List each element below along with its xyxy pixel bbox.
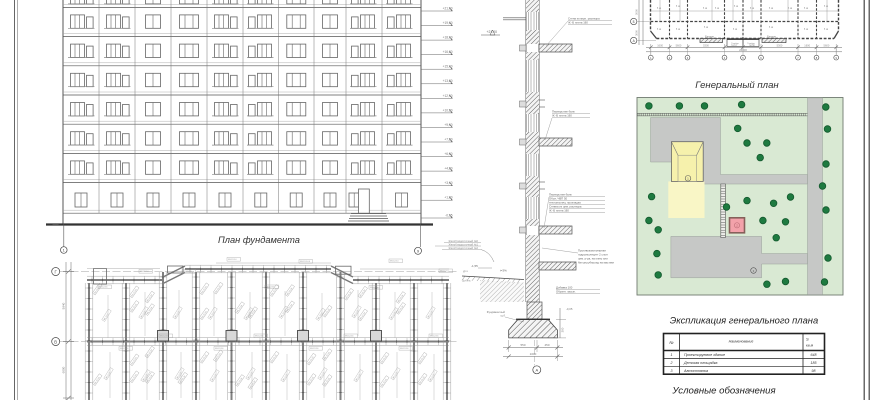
svg-text:Б: Б	[633, 20, 635, 24]
svg-text:В: В	[54, 339, 57, 344]
svg-text:5000: 5000	[635, 9, 639, 15]
svg-text:Желоб водосточный №1: Желоб водосточный №1	[449, 242, 479, 246]
svg-text:3: 3	[671, 369, 673, 373]
svg-text:5 кв: 5 кв	[715, 7, 720, 10]
svg-text:+21,00: +21,00	[443, 7, 453, 11]
svg-text:ФБС24.6: ФБС24.6	[255, 335, 264, 338]
svg-text:6000: 6000	[62, 366, 66, 373]
svg-text:кв.м: кв.м	[806, 344, 814, 348]
svg-text:5 кв: 5 кв	[750, 7, 755, 10]
svg-text:5 кв: 5 кв	[676, 28, 681, 31]
svg-text:Условные обозначения: Условные обозначения	[671, 386, 775, 397]
svg-text:550: 550	[520, 343, 525, 347]
svg-text:5 кв: 5 кв	[733, 28, 738, 31]
svg-text:1600: 1600	[804, 43, 810, 47]
svg-text:Обратн. засып.: Обратн. засып.	[556, 290, 576, 294]
svg-text:ФБС24.6: ФБС24.6	[266, 286, 275, 289]
svg-text:Щебень: Щебень	[462, 280, 472, 283]
svg-text:ур.з: ур.з	[463, 270, 468, 273]
svg-text:5600: 5600	[749, 43, 755, 47]
svg-text:ФБС24.6: ФБС24.6	[400, 347, 409, 350]
svg-text:Балкон: Балкон	[767, 34, 776, 38]
svg-text:+7,80: +7,80	[444, 138, 452, 142]
svg-text:Проектируемое здание: Проектируемое здание	[684, 353, 725, 357]
svg-text:ФБС12.4: ФБС12.4	[440, 270, 449, 273]
svg-text:-1,55: -1,55	[471, 264, 478, 268]
svg-text:5 кв: 5 кв	[657, 7, 662, 10]
svg-text:Наименование: Наименование	[729, 340, 754, 344]
svg-text:+1,80: +1,80	[444, 196, 452, 200]
svg-text:ФБС24.6: ФБС24.6	[370, 286, 379, 289]
svg-text:1: 1	[671, 353, 673, 357]
svg-text:648: 648	[811, 353, 817, 357]
svg-text:+21,00: +21,00	[487, 30, 498, 34]
svg-text:+12,00: +12,00	[443, 94, 453, 98]
svg-text:+3,00: +3,00	[444, 181, 452, 185]
svg-text:Генеральный план: Генеральный план	[695, 80, 779, 91]
svg-text:26000: 26000	[739, 48, 747, 52]
svg-text:+19,80: +19,80	[443, 21, 453, 25]
svg-text:ФБС24.6: ФБС24.6	[310, 347, 319, 350]
svg-text:5 кв: 5 кв	[804, 28, 809, 31]
svg-text:5 кв: 5 кв	[734, 5, 739, 8]
svg-text:Фундаментный: Фундаментный	[487, 310, 506, 314]
svg-text:Ж -Б плита 160: Ж -Б плита 160	[549, 209, 569, 213]
svg-text:ФБС24.6: ФБС24.6	[160, 335, 169, 338]
svg-text:ФБС24.4: ФБС24.4	[228, 258, 237, 261]
svg-text:Ж -Б плита 160: Ж -Б плита 160	[568, 21, 588, 25]
svg-text:План фундамента: План фундамента	[218, 235, 300, 245]
svg-text:300: 300	[561, 327, 565, 332]
svg-text:S: S	[806, 337, 809, 342]
svg-text:5 кв: 5 кв	[657, 28, 662, 31]
svg-text:Экспликация генерального плана: Экспликация генерального плана	[670, 315, 818, 326]
svg-text:Желоб водосточный №2: Желоб водосточный №2	[449, 246, 479, 250]
svg-text:ФБС24.4: ФБС24.4	[390, 260, 399, 263]
svg-text:5300: 5300	[777, 43, 783, 47]
svg-text:+4,80: +4,80	[444, 167, 452, 171]
svg-text:98: 98	[812, 369, 816, 373]
svg-text:+10,80: +10,80	[443, 108, 453, 112]
svg-text:1600: 1600	[657, 43, 663, 47]
svg-text:ФБС24.6: ФБС24.6	[345, 335, 354, 338]
svg-text:ФБС12.4: ФБС12.4	[140, 270, 149, 273]
svg-text:+6,00: +6,00	[444, 152, 452, 156]
svg-text:2600: 2600	[731, 43, 737, 47]
svg-text:битум рубероид на мастике: битум рубероид на мастике	[578, 261, 615, 265]
svg-text:5 кв: 5 кв	[704, 26, 709, 29]
svg-text:5600: 5600	[824, 43, 830, 47]
svg-text:185: 185	[811, 361, 817, 365]
svg-text:+16,80: +16,80	[443, 50, 453, 54]
svg-text:5 кв: 5 кв	[769, 7, 774, 10]
svg-text:ФБС24.6: ФБС24.6	[215, 347, 224, 350]
svg-text:5 кв: 5 кв	[804, 7, 809, 10]
svg-text:А: А	[535, 368, 538, 373]
svg-text:+15,00: +15,00	[443, 65, 453, 69]
svg-text:ФБС12.4: ФБС12.4	[183, 270, 192, 273]
svg-text:ФБС24.6: ФБС24.6	[120, 347, 129, 350]
svg-text:ФБС24.4.6: ФБС24.4.6	[300, 260, 311, 263]
svg-text:1000: 1000	[530, 352, 537, 356]
svg-text:5 кв: 5 кв	[788, 7, 793, 10]
svg-text:Автостоянка: Автостоянка	[683, 369, 708, 373]
svg-text:5 кв: 5 кв	[703, 7, 708, 10]
svg-text:+9,00: +9,00	[444, 123, 452, 127]
svg-text:5 кв: 5 кв	[824, 28, 829, 31]
svg-text:5 кв: 5 кв	[676, 5, 681, 8]
svg-text:ФБС24.6: ФБС24.6	[99, 286, 108, 289]
svg-text:3000: 3000	[635, 30, 639, 36]
svg-text:5 кв: 5 кв	[824, 5, 829, 8]
svg-text:Балкон: Балкон	[705, 34, 714, 38]
svg-text:-0,05: -0,05	[566, 307, 573, 311]
svg-text:ФБС24.6: ФБС24.6	[430, 335, 439, 338]
svg-text:щ.б: щ.б	[501, 313, 506, 317]
svg-text:Детская площадка: Детская площадка	[683, 361, 718, 365]
svg-text:-0,95: -0,95	[445, 214, 452, 218]
svg-text:5600: 5600	[676, 43, 682, 47]
svg-text:2: 2	[670, 361, 673, 365]
svg-text:i=3%: i=3%	[500, 269, 507, 273]
svg-text:Ж -Б плита 160: Ж -Б плита 160	[552, 114, 572, 118]
svg-text:+18,00: +18,00	[443, 36, 453, 40]
svg-text:5300: 5300	[703, 43, 709, 47]
svg-text:№: №	[669, 340, 674, 345]
svg-text:+13,80: +13,80	[443, 79, 453, 83]
svg-text:450: 450	[544, 343, 549, 347]
svg-text:5940: 5940	[62, 302, 66, 309]
svg-text:5 кв: 5 кв	[769, 26, 774, 29]
svg-text:Желоб водосточный №0: Желоб водосточный №0	[449, 239, 479, 243]
